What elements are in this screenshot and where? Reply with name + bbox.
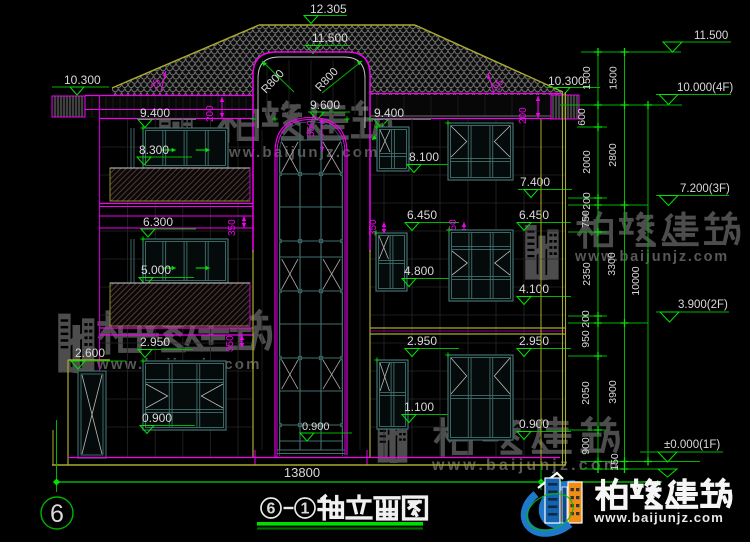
svg-text:0.900: 0.900 — [519, 417, 549, 431]
svg-text:9.400: 9.400 — [140, 106, 170, 120]
svg-text:1.100: 1.100 — [404, 400, 434, 414]
svg-text:9.400: 9.400 — [374, 106, 404, 120]
svg-text:3300: 3300 — [606, 252, 618, 276]
svg-text:2800: 2800 — [607, 143, 619, 167]
svg-text:2350: 2350 — [581, 262, 593, 286]
svg-text:0.900: 0.900 — [142, 411, 172, 425]
svg-text:2.600: 2.600 — [75, 346, 105, 360]
svg-text:8.300: 8.300 — [139, 143, 169, 157]
svg-text:10.300: 10.300 — [64, 73, 101, 87]
svg-text:2.950: 2.950 — [407, 334, 437, 348]
svg-text:2000: 2000 — [581, 150, 593, 174]
svg-text:13800: 13800 — [284, 465, 320, 480]
svg-text:6.450: 6.450 — [519, 208, 549, 222]
svg-text:7.200(3F): 7.200(3F) — [680, 183, 730, 195]
svg-text:1500: 1500 — [608, 66, 620, 90]
svg-text:6.300: 6.300 — [143, 215, 173, 229]
svg-text:www.baijunjz.com: www.baijunjz.com — [593, 510, 724, 525]
svg-text:11.500: 11.500 — [694, 30, 728, 42]
svg-text:0.900: 0.900 — [302, 421, 330, 433]
svg-text:8.100: 8.100 — [409, 150, 439, 164]
svg-text:10000: 10000 — [630, 266, 642, 295]
svg-text:150: 150 — [609, 453, 621, 471]
svg-text:4.100: 4.100 — [519, 282, 549, 296]
svg-text:950: 950 — [580, 330, 592, 348]
svg-text:11.500: 11.500 — [312, 31, 348, 45]
svg-text:900: 900 — [580, 437, 592, 455]
svg-text:350: 350 — [225, 335, 236, 352]
svg-text:550: 550 — [306, 120, 317, 137]
svg-text:6.450: 6.450 — [407, 208, 437, 222]
svg-text:±0.000(1F): ±0.000(1F) — [664, 439, 720, 451]
svg-text:6: 6 — [50, 500, 64, 528]
svg-text:10.300: 10.300 — [548, 74, 585, 88]
svg-text:600: 600 — [576, 108, 588, 126]
svg-text:750: 750 — [580, 210, 592, 228]
svg-text:www.baijunjz.com: www.baijunjz.com — [574, 249, 729, 265]
svg-text:12.305: 12.305 — [310, 2, 347, 16]
svg-text:5.000: 5.000 — [141, 263, 171, 277]
svg-text:www.baijunjz.com: www.baijunjz.com — [214, 144, 380, 161]
svg-text:350: 350 — [227, 219, 238, 236]
svg-text:200: 200 — [580, 310, 592, 328]
svg-text:1: 1 — [301, 501, 310, 518]
svg-text:3.900(2F): 3.900(2F) — [678, 299, 728, 311]
svg-text:10.000(4F): 10.000(4F) — [677, 82, 733, 94]
svg-text:6: 6 — [267, 501, 276, 518]
svg-text:1500: 1500 — [581, 66, 593, 90]
svg-text:9.600: 9.600 — [310, 98, 340, 112]
svg-text:2050: 2050 — [580, 381, 592, 405]
svg-text:200: 200 — [581, 192, 593, 210]
svg-text:7.400: 7.400 — [520, 175, 550, 189]
svg-text:4.800: 4.800 — [404, 264, 434, 278]
svg-text:200: 200 — [518, 107, 529, 124]
svg-text:3900: 3900 — [607, 380, 619, 404]
svg-text:2.950: 2.950 — [519, 334, 549, 348]
svg-text:2.950: 2.950 — [140, 335, 170, 349]
